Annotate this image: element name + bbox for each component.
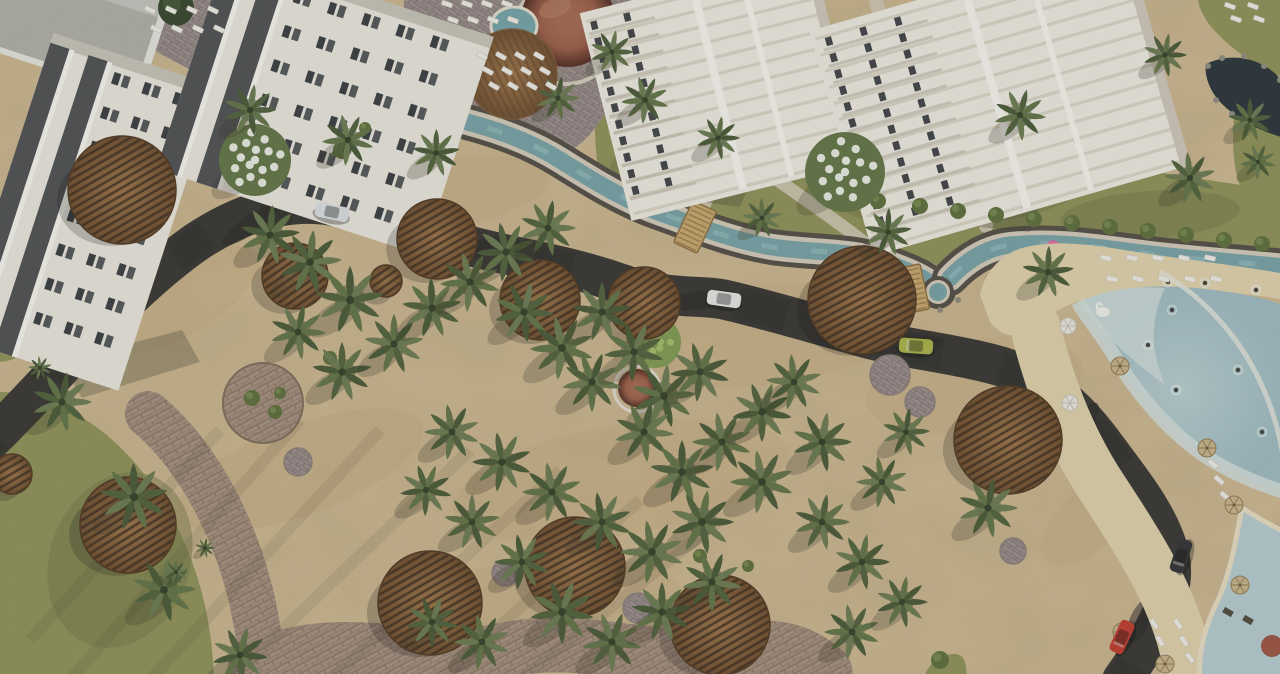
scene-svg <box>0 0 1280 674</box>
grain-light <box>0 0 1280 674</box>
resort-aerial-rendering <box>0 0 1280 674</box>
